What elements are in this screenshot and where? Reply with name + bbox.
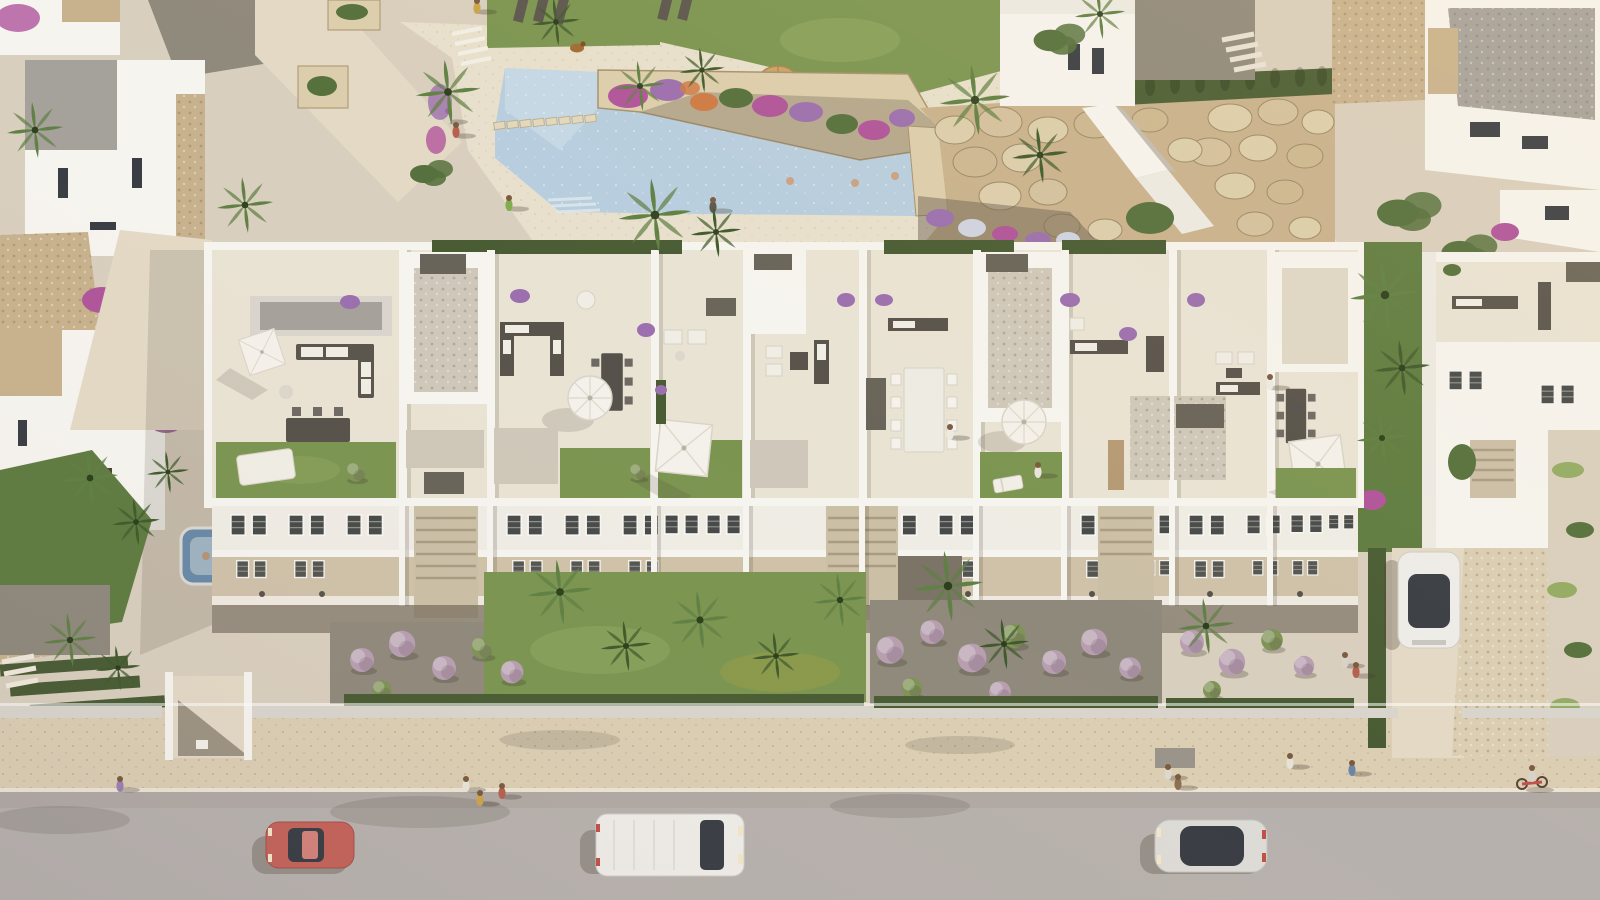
scene-canvas: Aerial 3D render — Mediterranean apartme…	[0, 0, 1600, 900]
sunlight-overlay	[0, 0, 1600, 900]
aerial-render: Aerial 3D render — Mediterranean apartme…	[0, 0, 1600, 900]
